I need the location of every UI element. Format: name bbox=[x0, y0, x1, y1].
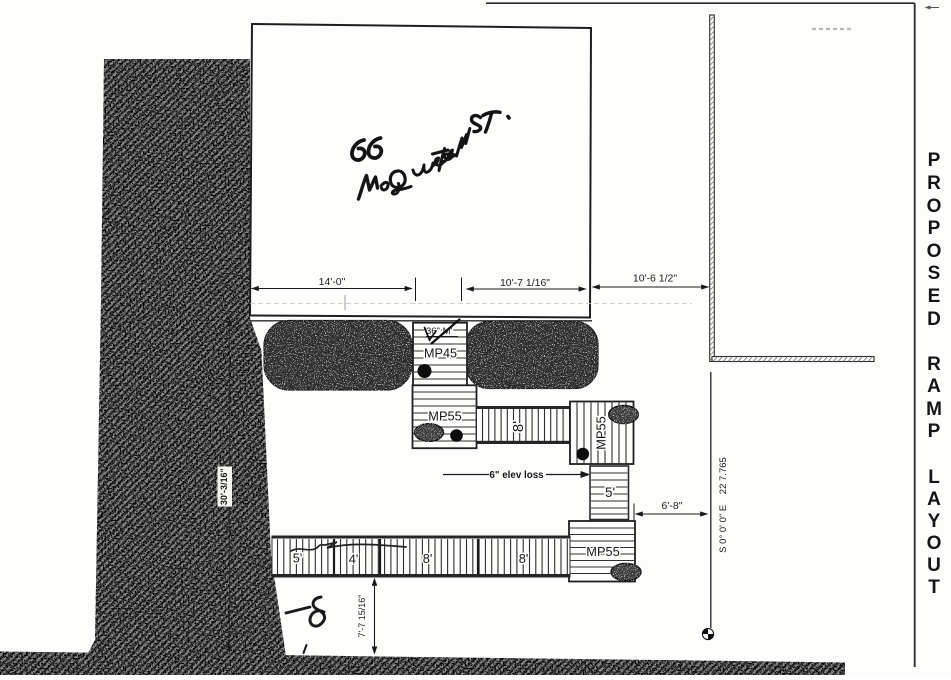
svg-text:Y: Y bbox=[928, 511, 941, 532]
svg-text:6'-8": 6'-8" bbox=[662, 500, 683, 512]
svg-text:E: E bbox=[928, 286, 941, 307]
svg-text:10'-6 1/2": 10'-6 1/2" bbox=[633, 273, 678, 285]
svg-text:MP55: MP55 bbox=[594, 416, 609, 449]
svg-text:5': 5' bbox=[605, 485, 615, 500]
svg-text:10'-7 1/16": 10'-7 1/16" bbox=[500, 277, 550, 289]
svg-text:O: O bbox=[927, 241, 942, 262]
svg-text:A: A bbox=[927, 376, 941, 397]
svg-text:S 0° 0' 0" E 22 7.765: S 0° 0' 0" E 22 7.765 bbox=[718, 457, 729, 553]
svg-text:4': 4' bbox=[349, 552, 359, 567]
svg-text:A: A bbox=[927, 489, 941, 510]
svg-text:8': 8' bbox=[510, 421, 527, 432]
svg-text:7'-7 15/16": 7'-7 15/16" bbox=[357, 595, 367, 638]
svg-text:14'-0": 14'-0" bbox=[319, 276, 346, 288]
svg-text:P: P bbox=[928, 421, 941, 442]
svg-text:U: U bbox=[927, 555, 941, 576]
svg-text:R: R bbox=[927, 173, 941, 194]
svg-text:P: P bbox=[928, 150, 941, 171]
svg-text:P: P bbox=[928, 218, 941, 239]
svg-text:O: O bbox=[927, 196, 942, 217]
svg-text:D: D bbox=[927, 309, 941, 330]
svg-text:5': 5' bbox=[293, 551, 303, 566]
svg-text:30'-3/16": 30'-3/16" bbox=[219, 468, 229, 505]
svg-text:M: M bbox=[926, 399, 942, 420]
svg-text:S: S bbox=[928, 263, 941, 284]
svg-text:MP45: MP45 bbox=[424, 347, 457, 361]
svg-text:8': 8' bbox=[519, 551, 529, 566]
svg-text:R: R bbox=[927, 354, 941, 375]
svg-text:L: L bbox=[928, 467, 940, 488]
svg-text:MP55: MP55 bbox=[428, 409, 461, 424]
svg-text:MP55: MP55 bbox=[586, 544, 619, 559]
svg-text:8': 8' bbox=[423, 551, 433, 566]
svg-text:O: O bbox=[927, 533, 942, 554]
svg-text:T: T bbox=[928, 577, 940, 598]
svg-text:6" elev loss: 6" elev loss bbox=[489, 470, 544, 481]
